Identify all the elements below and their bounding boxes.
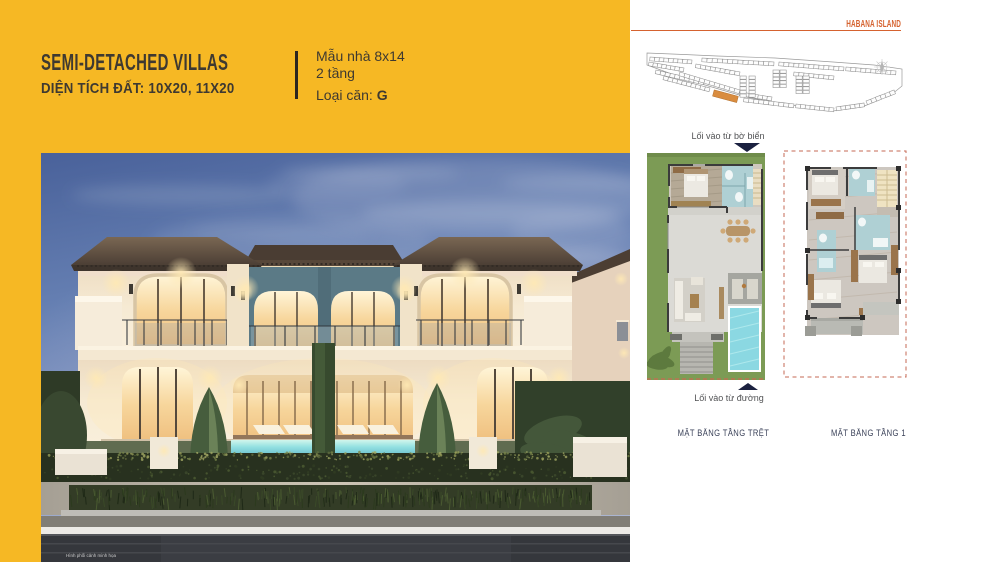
svg-text:Hình phối cảnh minh họa: Hình phối cảnh minh họa [66,553,117,558]
